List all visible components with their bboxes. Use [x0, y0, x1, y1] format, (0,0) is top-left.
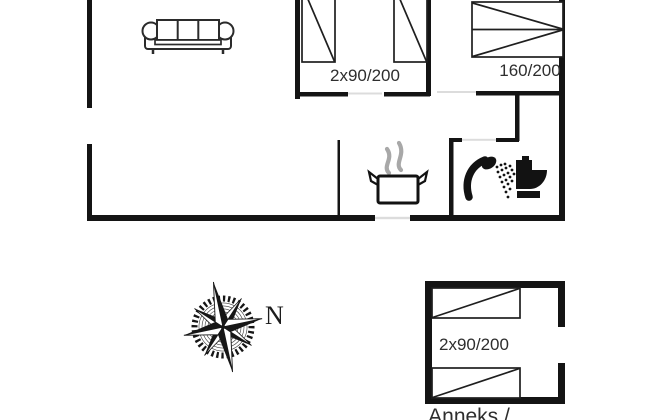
middle-bedroom-bed-1 — [302, 0, 335, 62]
double-bed-160 — [472, 2, 563, 57]
water-drops-icon — [496, 163, 516, 199]
floorplan-canvas: 2x90/200 160/200 2x90/200 Anneks / N — [0, 0, 650, 420]
right-bedroom-bed-size-label: 160/200 — [465, 62, 595, 80]
compass-north-label: N — [265, 302, 284, 329]
sofa-icon — [143, 20, 234, 54]
steam-icon — [387, 143, 402, 173]
toilet-icon — [516, 156, 547, 198]
middle-bedroom-bed-2 — [394, 0, 427, 62]
shower-icon — [467, 154, 515, 198]
middle-bedroom-bed-size-label: 2x90/200 — [300, 67, 430, 85]
cooking-pot-steam-icon — [369, 143, 427, 203]
annex-bed-2 — [432, 368, 520, 398]
annex-bed-size-label: 2x90/200 — [439, 336, 509, 354]
door-openings — [348, 91, 496, 219]
compass-rose-icon — [174, 274, 271, 381]
annex-bed-1 — [432, 288, 520, 318]
annex-title-label: Anneks / — [399, 406, 539, 420]
